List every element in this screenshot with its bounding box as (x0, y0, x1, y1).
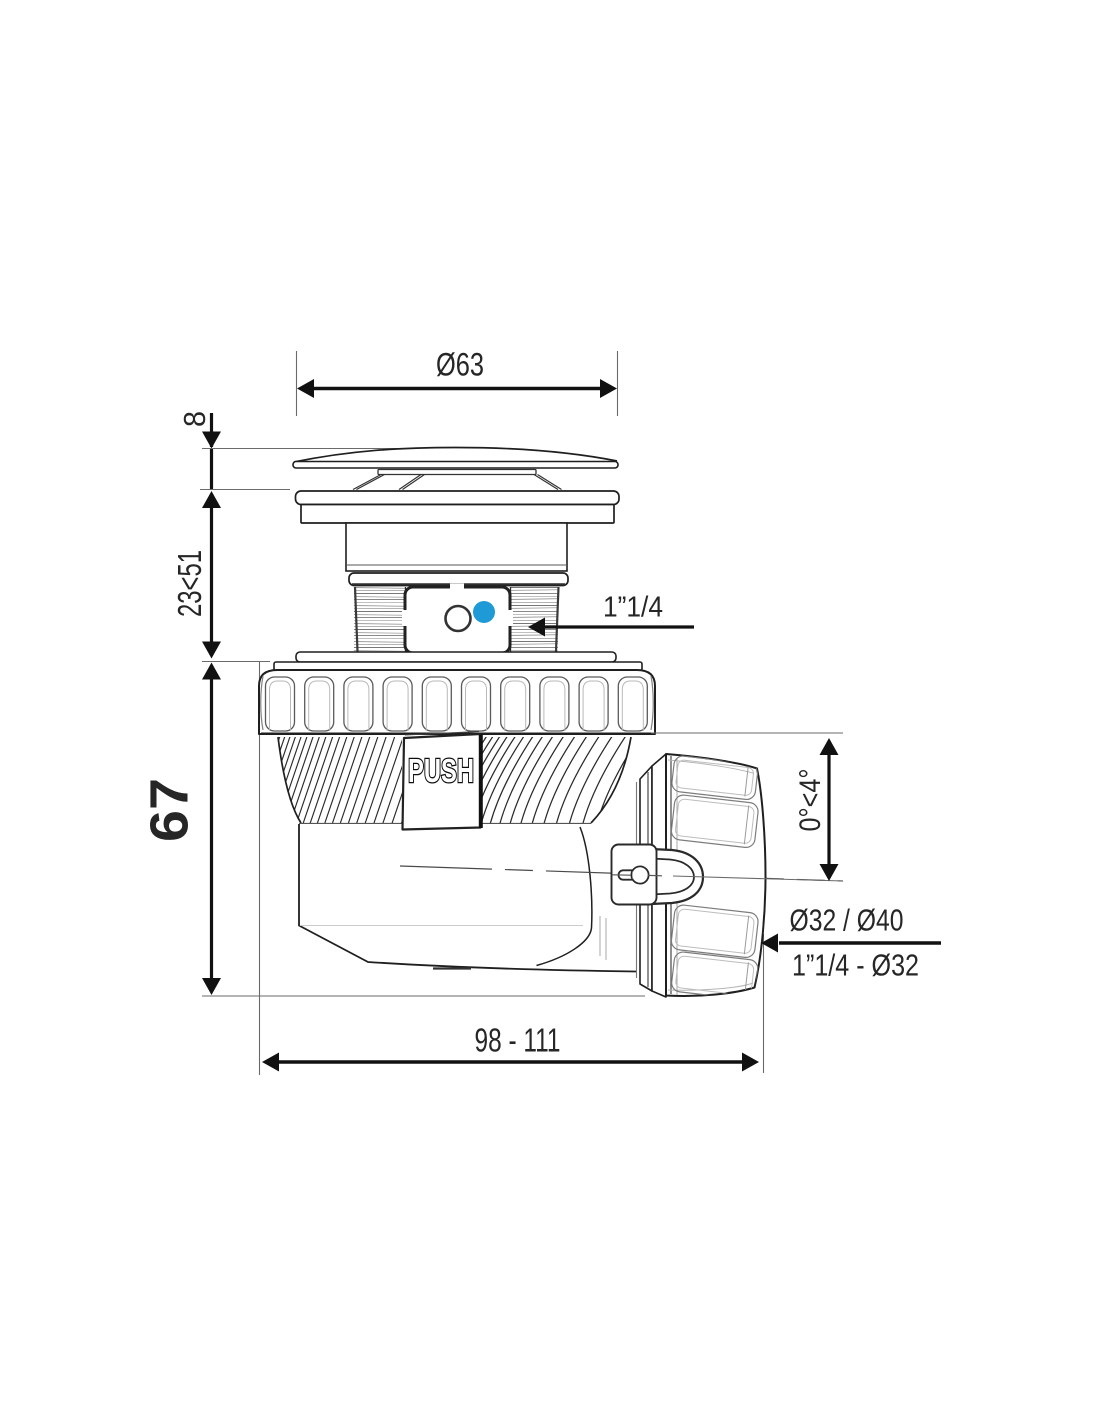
svg-text:98 - 111: 98 - 111 (475, 1022, 561, 1059)
svg-text:Ø63: Ø63 (436, 347, 484, 383)
svg-text:0°<4°: 0°<4° (794, 769, 827, 832)
svg-text:Ø32 / Ø40: Ø32 / Ø40 (790, 904, 904, 938)
svg-text:PUSH: PUSH (408, 752, 474, 789)
svg-text:1”1/4 - Ø32: 1”1/4 - Ø32 (792, 949, 919, 983)
svg-text:8: 8 (177, 411, 212, 427)
svg-text:23<51: 23<51 (171, 550, 208, 617)
svg-text:67: 67 (140, 778, 200, 842)
svg-text:1”1/4: 1”1/4 (603, 592, 663, 624)
